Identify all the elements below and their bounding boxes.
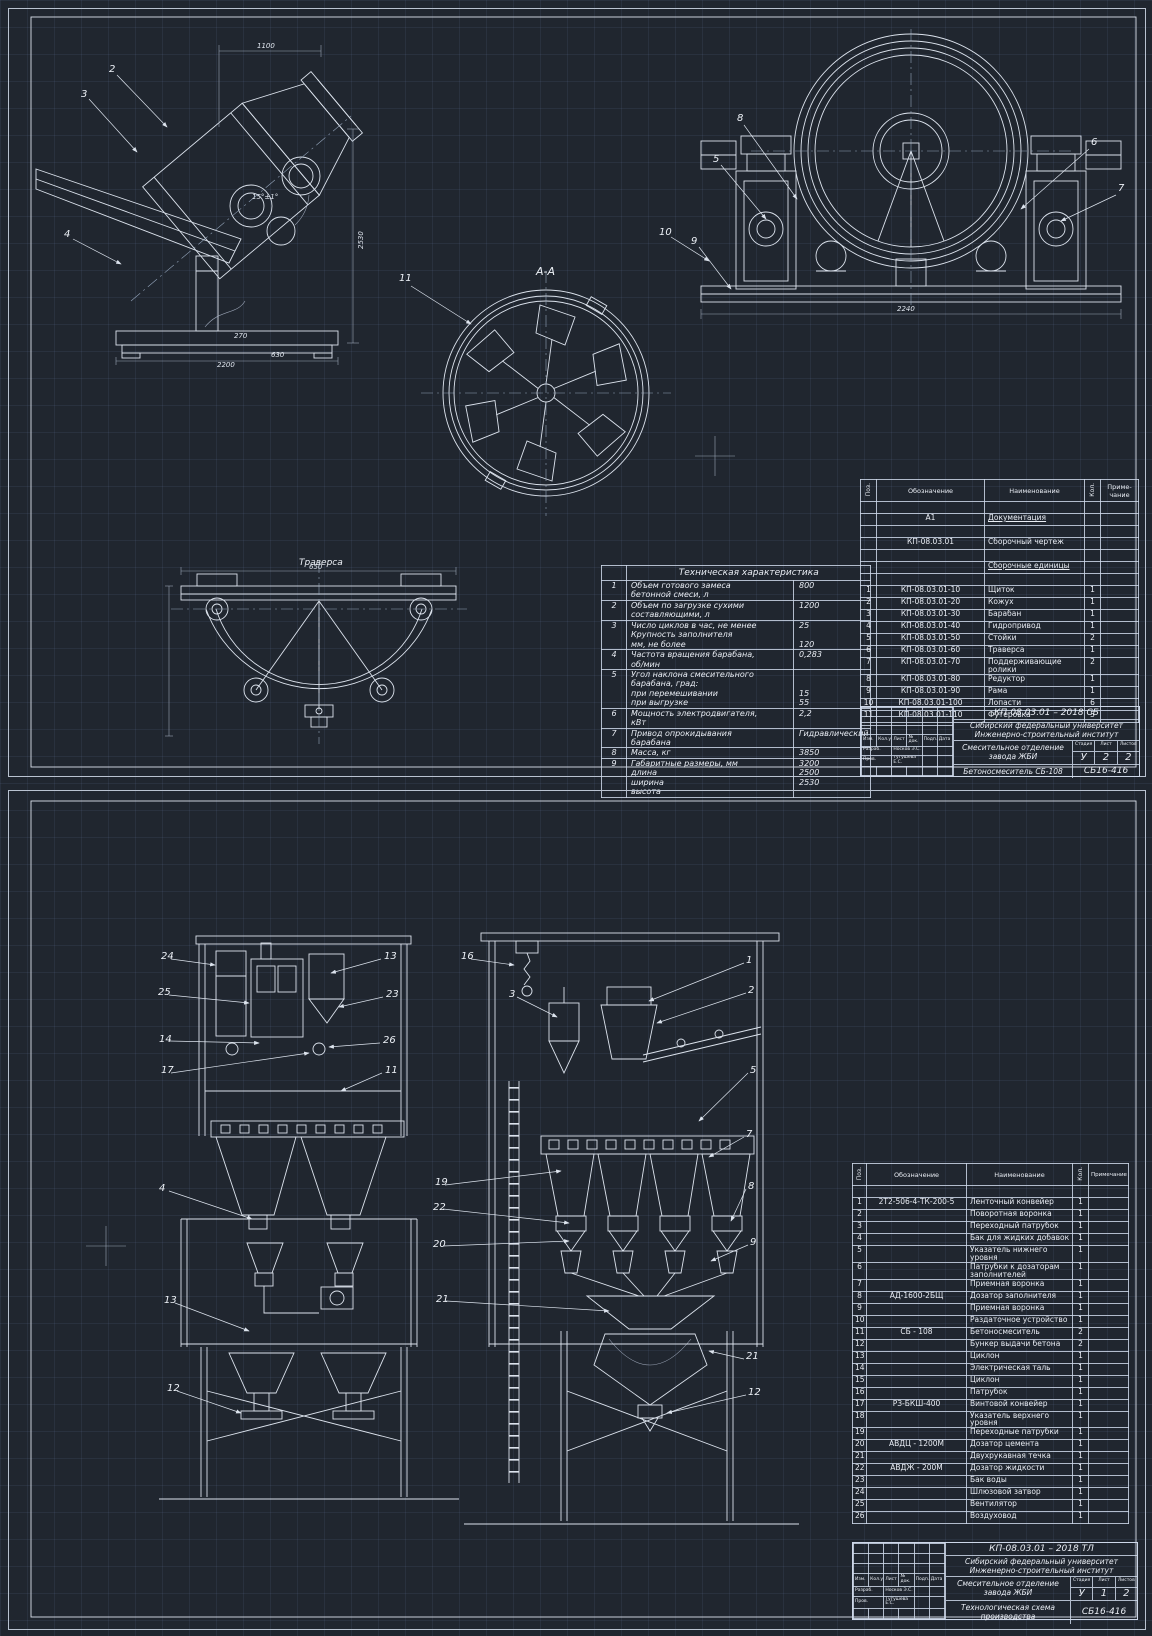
dim-label: 270: [234, 332, 247, 340]
spec-header-qty: Кол.: [1073, 1164, 1089, 1186]
sig-row: Разраб.Носков Э.С.: [854, 1586, 945, 1596]
sheet-number: 2: [1095, 752, 1117, 763]
spec-row: 6 Патрубки к дозаторам заполнителей 1: [853, 1262, 1129, 1279]
sheet-header: Лист: [1093, 1577, 1115, 1588]
stage-sheet-grid: Стадия Лист Листов У 2 2: [1073, 741, 1139, 764]
tech-row: 7 Привод опрокидывания барабана Гидравли…: [602, 728, 871, 748]
tech-row: 5 Угол наклона смесительного барабана, г…: [602, 669, 871, 708]
spec-row: Сборочные единицы: [861, 562, 1139, 574]
stage-header: Стадия: [1071, 1577, 1093, 1588]
organization: Сибирский федеральный университет Инжене…: [946, 1556, 1137, 1577]
spec-row: 14 Электрическая таль 1: [853, 1363, 1129, 1375]
callout: 13: [164, 1295, 177, 1306]
product-name: Бетоносмеситель СБ-108: [954, 765, 1073, 778]
spec-header-qty: Кол.: [1085, 480, 1101, 502]
sig-row: Пров.Тугушева Е.С.: [854, 1596, 945, 1609]
tech-row: 2 Объем по загрузке сухими составляющими…: [602, 600, 871, 620]
callout: 6: [1091, 137, 1097, 148]
callout: 4: [159, 1183, 165, 1194]
spec-row: КП-08.03.01 Сборочный чертеж: [861, 538, 1139, 550]
spec-row: 18 Указатель верхнего уровня 1: [853, 1411, 1129, 1428]
callout: 26: [383, 1035, 396, 1046]
callout: 5: [750, 1065, 756, 1076]
sheets-header: Листов: [1118, 741, 1139, 752]
callout: 17: [161, 1065, 174, 1076]
organization: Сибирский федеральный университет Инжене…: [954, 720, 1139, 741]
dim-label: 2530: [357, 231, 365, 249]
document-number: КП-08.03.01 – 2018 ТЛ: [946, 1543, 1137, 1556]
callout: 20: [433, 1239, 446, 1250]
sheet-1-assembly-drawing: А-А Траверса 2 3 4 8 5 9 10 6 7 11 1100 …: [8, 8, 1146, 777]
spec-header-note: Примечание: [1089, 1164, 1129, 1186]
spec-row: [861, 550, 1139, 562]
spec-row: 3 КП-08.03.01-30 Барабан 1: [861, 610, 1139, 622]
spec-row: 20 АВДЦ - 1200М Дозатор цемента 1: [853, 1440, 1129, 1452]
spec-header-name: Наименование: [967, 1164, 1073, 1186]
spec-row: 12 Бункер выдачи бетона 2: [853, 1339, 1129, 1351]
dim-label: 1100: [257, 42, 275, 50]
callout: 24: [161, 951, 174, 962]
spec-header-pos: Поз.: [853, 1164, 867, 1186]
spec-row: 25 Вентилятор 1: [853, 1500, 1129, 1512]
spec-row: А1 Документация: [861, 514, 1139, 526]
callout: 16: [461, 951, 474, 962]
spec-header-mark: Обозначение: [877, 480, 985, 502]
callout: 11: [399, 273, 412, 284]
spec-row: [861, 502, 1139, 514]
tech-row: 8 Масса, кг 3850: [602, 748, 871, 758]
spec-row: 2 КП-08.03.01-20 Кожух 1: [861, 598, 1139, 610]
tech-title: Техническая характеристика: [627, 566, 871, 581]
callout: 7: [746, 1129, 752, 1140]
spec-row: 9 КП-08.03.01-90 Рама 1: [861, 686, 1139, 698]
spec-row: 1 2Т2-506-4-ТК-200-5 Ленточный конвейер …: [853, 1198, 1129, 1210]
callout: 14: [159, 1034, 172, 1045]
title-block-signatures: Изм.Кол.уч. Лист№ док. Подп.Дата Разраб.…: [861, 707, 954, 776]
spec-row: 21 Двухрукавная течка 1: [853, 1452, 1129, 1464]
spec-header-note: Приме- чание: [1101, 480, 1139, 502]
callout: 8: [737, 113, 743, 124]
dim-label: 2240: [897, 305, 915, 313]
sig-row: Пров.Тугушева Е.С.: [862, 755, 953, 766]
sheet-header: Лист: [1095, 741, 1117, 752]
section-label: А-А: [536, 265, 555, 278]
group-code: СБ16-416: [1073, 765, 1139, 778]
callout: 10: [659, 227, 672, 238]
callout: 7: [1118, 183, 1124, 194]
spec-row: 26 Воздуховод 1: [853, 1512, 1129, 1524]
spec-row: 16 Патрубок 1: [853, 1387, 1129, 1399]
dim-label: 2200: [217, 361, 235, 369]
spec-row: 10 Раздаточное устройство 1: [853, 1315, 1129, 1327]
spec-row: 2 Поворотная воронка 1: [853, 1210, 1129, 1222]
dim-label: 630: [271, 351, 284, 359]
callout: 2: [109, 64, 115, 75]
spec-row: 8 КП-08.03.01-80 Редуктор 1: [861, 674, 1139, 686]
stage-header: Стадия: [1073, 741, 1095, 752]
title-block: Изм.Кол.уч. Лист№ док. Подп.Дата Разраб.…: [852, 1542, 1138, 1620]
spec-row: 13 Циклон 1: [853, 1351, 1129, 1363]
drawing-subject: Смесительное отделение завода ЖБИ: [954, 741, 1073, 764]
spec-row: 8 АД-1600-2БЩ Дозатор заполнителя 1: [853, 1291, 1129, 1303]
spec-header-name: Наименование: [985, 480, 1085, 502]
callout: 9: [750, 1237, 756, 1248]
tech-corner: [602, 566, 627, 581]
spec-header-pos: Поз.: [861, 480, 877, 502]
group-code: СБ16-416: [1071, 1601, 1137, 1624]
callout: 13: [384, 951, 397, 962]
spec-row: [853, 1186, 1129, 1198]
drawing-canvas: А-А Траверса 2 3 4 8 5 9 10 6 7 11 1100 …: [0, 0, 1152, 1636]
specification-table: Поз. Обозначение Наименование Кол. Приме…: [860, 479, 1139, 723]
tech-row: 4 Частота вращения барабана, об/мин 0,28…: [602, 650, 871, 670]
callout: 3: [81, 89, 87, 100]
spec-row: [861, 574, 1139, 586]
document-number: КП-08.03.01 – 2018 СБ: [954, 707, 1139, 720]
tech-row: 1 Объем готового замеса бетонной смеси, …: [602, 581, 871, 601]
sheet-number: 1: [1093, 1588, 1115, 1599]
callout: 12: [167, 1383, 180, 1394]
spec-row: 23 Бак воды 1: [853, 1476, 1129, 1488]
spec-row: 15 Циклон 1: [853, 1375, 1129, 1387]
callout: 3: [509, 989, 515, 1000]
spec-row: [861, 526, 1139, 538]
spec-row: 9 Приемная воронка 1: [853, 1303, 1129, 1315]
title-block-signatures: Изм.Кол.уч. Лист№ док. Подп.Дата Разраб.…: [853, 1543, 946, 1619]
sig-header-row: Изм.Кол.уч. Лист№ док. Подп.Дата: [854, 1574, 945, 1587]
callout: 1: [746, 955, 752, 966]
sheets-total: 2: [1116, 1588, 1137, 1599]
drawing-title: Технологическая схема производства: [946, 1601, 1071, 1624]
callout: 5: [713, 154, 719, 165]
drawing-subject: Смесительное отделение завода ЖБИ: [946, 1577, 1071, 1600]
dim-label: 15°±1°: [252, 193, 278, 201]
callout: 23: [386, 989, 399, 1000]
sheets-total: 2: [1118, 752, 1139, 763]
spec-row: 3 Переходный патрубок 1: [853, 1222, 1129, 1234]
spec-row: 5 Указатель нижнего уровня 1: [853, 1246, 1129, 1263]
spec-row: 5 КП-08.03.01-50 Стойки 2: [861, 634, 1139, 646]
spec-header-mark: Обозначение: [867, 1164, 967, 1186]
stage-value: У: [1073, 752, 1095, 763]
tech-characteristics-table: Техническая характеристика 1 Объем готов…: [601, 565, 871, 798]
stage-value: У: [1071, 1588, 1093, 1599]
callout: 21: [746, 1351, 759, 1362]
spec-row: 1 КП-08.03.01-10 Щиток 1: [861, 586, 1139, 598]
spec-row: 24 Шлюзовой затвор 1: [853, 1488, 1129, 1500]
spec-row: 6 КП-08.03.01-60 Траверса 1: [861, 646, 1139, 658]
callout: 11: [385, 1065, 398, 1076]
callout: 2: [748, 985, 754, 996]
spec-row: 22 АВДЖ - 200М Дозатор жидкости 1: [853, 1464, 1129, 1476]
callout: 21: [436, 1294, 449, 1305]
sig-row: Разраб.Носков Э.С.: [862, 746, 953, 755]
title-block: Изм.Кол.уч. Лист№ док. Подп.Дата Разраб.…: [860, 706, 1140, 777]
callout: 12: [748, 1387, 761, 1398]
sig-header-row: Изм.Кол.уч. Лист№ док. Подп.Дата: [862, 735, 953, 746]
stage-sheet-grid: Стадия Лист Листов У 1 2: [1071, 1577, 1137, 1600]
spec-row: 19 Переходные патрубки 1: [853, 1428, 1129, 1440]
callout: 19: [435, 1177, 448, 1188]
spec-row: 4 КП-08.03.01-40 Гидропривод 1: [861, 622, 1139, 634]
callout: 22: [433, 1202, 446, 1213]
tech-row: 6 Мощность электродвигателя, кВт 2,2: [602, 708, 871, 728]
callout: 4: [64, 229, 70, 240]
callout: 25: [158, 987, 171, 998]
dim-label: 650: [309, 563, 322, 571]
equipment-specification-table: Поз. Обозначение Наименование Кол. Приме…: [852, 1163, 1129, 1524]
spec-row: 7 КП-08.03.01-70 Поддерживающие ролики 2: [861, 658, 1139, 675]
spec-row: 7 Приемная воронка 1: [853, 1279, 1129, 1291]
sheet-2-process-scheme: 24 25 14 17 4 13 12 13 23 26 11 16 3 19 …: [8, 790, 1146, 1630]
sheets-header: Листов: [1116, 1577, 1137, 1588]
tech-row: 3 Число циклов в час, не менее Крупность…: [602, 620, 871, 649]
spec-row: 4 Бак для жидких добавок 1: [853, 1234, 1129, 1246]
callout: 8: [748, 1181, 754, 1192]
callout: 9: [691, 236, 697, 247]
spec-row: 11 СБ - 108 Бетоносмеситель 2: [853, 1327, 1129, 1339]
spec-row: 17 РЗ-БКШ-400 Винтовой конвейер 1: [853, 1399, 1129, 1411]
